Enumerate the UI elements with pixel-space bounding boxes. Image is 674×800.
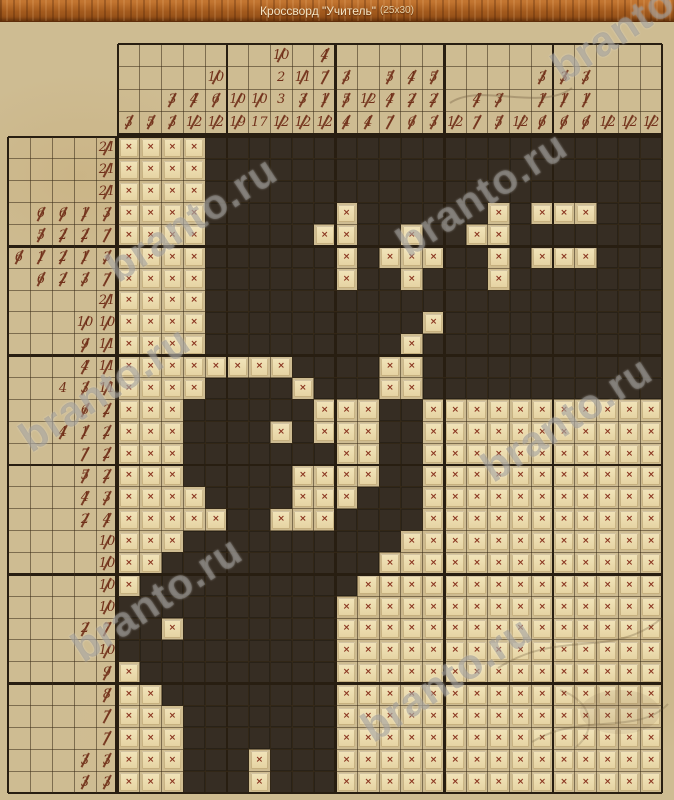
top-clue[interactable]: 10 [249, 89, 271, 111]
grid-cell[interactable]: × [640, 552, 662, 574]
top-clue[interactable]: 1 [531, 89, 553, 111]
grid-cell[interactable]: × [379, 246, 401, 268]
grid-cell[interactable]: × [423, 531, 445, 553]
grid-cell[interactable] [140, 596, 162, 618]
grid-cell[interactable] [357, 378, 379, 400]
grid-cell[interactable] [183, 662, 205, 684]
grid-cell[interactable]: × [423, 574, 445, 596]
grid-cell[interactable] [205, 334, 227, 356]
grid-cell[interactable] [466, 203, 488, 225]
grid-cell[interactable] [249, 465, 271, 487]
grid-cell[interactable]: × [336, 203, 358, 225]
grid-cell[interactable]: × [618, 487, 640, 509]
grid-cell[interactable]: × [118, 137, 140, 159]
grid-cell[interactable]: × [270, 509, 292, 531]
grid-cell[interactable]: × [640, 684, 662, 706]
grid-cell[interactable]: × [575, 487, 597, 509]
grid-cell[interactable]: × [618, 574, 640, 596]
grid-cell[interactable] [466, 290, 488, 312]
grid-cell[interactable]: × [444, 727, 466, 749]
top-clue[interactable]: 10 [270, 44, 292, 66]
grid-cell[interactable] [249, 378, 271, 400]
grid-cell[interactable]: × [510, 706, 532, 728]
grid-cell[interactable] [227, 181, 249, 203]
grid-cell[interactable]: × [466, 684, 488, 706]
top-clue[interactable]: 12 [510, 111, 532, 133]
grid-cell[interactable] [379, 224, 401, 246]
grid-cell[interactable] [336, 334, 358, 356]
grid-cell[interactable]: × [183, 509, 205, 531]
grid-cell[interactable]: × [140, 378, 162, 400]
grid-cell[interactable]: × [162, 487, 184, 509]
grid-cell[interactable] [423, 290, 445, 312]
grid-cell[interactable]: × [401, 531, 423, 553]
grid-cell[interactable]: × [162, 749, 184, 771]
top-clue[interactable]: 12 [444, 111, 466, 133]
grid-cell[interactable]: × [488, 399, 510, 421]
grid-cell[interactable]: × [118, 421, 140, 443]
grid-cell[interactable] [249, 662, 271, 684]
grid-cell[interactable] [205, 203, 227, 225]
grid-cell[interactable]: × [336, 246, 358, 268]
grid-cell[interactable] [401, 421, 423, 443]
grid-cell[interactable]: × [423, 662, 445, 684]
grid-cell[interactable] [640, 246, 662, 268]
grid-cell[interactable]: × [466, 421, 488, 443]
grid-cell[interactable]: × [510, 596, 532, 618]
grid-cell[interactable] [401, 203, 423, 225]
grid-cell[interactable]: × [575, 749, 597, 771]
grid-cell[interactable]: × [575, 684, 597, 706]
grid-cell[interactable]: × [140, 137, 162, 159]
grid-cell[interactable] [357, 246, 379, 268]
grid-cell[interactable]: × [575, 443, 597, 465]
grid-cell[interactable] [162, 596, 184, 618]
grid-cell[interactable]: × [466, 596, 488, 618]
grid-cell[interactable] [249, 181, 271, 203]
grid-cell[interactable] [618, 224, 640, 246]
grid-cell[interactable] [336, 159, 358, 181]
grid-cell[interactable]: × [488, 618, 510, 640]
grid-cell[interactable] [227, 596, 249, 618]
grid-cell[interactable]: × [292, 465, 314, 487]
grid-cell[interactable]: × [162, 224, 184, 246]
grid-cell[interactable] [314, 203, 336, 225]
grid-cell[interactable]: × [140, 509, 162, 531]
top-clue[interactable]: 5 [379, 66, 401, 88]
grid-cell[interactable] [249, 618, 271, 640]
grid-cell[interactable]: × [640, 662, 662, 684]
grid-cell[interactable] [444, 181, 466, 203]
top-clue[interactable]: 4 [183, 89, 205, 111]
grid-cell[interactable]: × [292, 487, 314, 509]
grid-cell[interactable]: × [488, 640, 510, 662]
grid-cell[interactable]: × [379, 378, 401, 400]
grid-cell[interactable]: × [423, 509, 445, 531]
grid-cell[interactable]: × [401, 640, 423, 662]
grid-cell[interactable] [553, 334, 575, 356]
grid-cell[interactable] [553, 224, 575, 246]
grid-cell[interactable] [292, 290, 314, 312]
grid-cell[interactable] [618, 334, 640, 356]
grid-cell[interactable] [270, 640, 292, 662]
grid-cell[interactable]: × [314, 487, 336, 509]
grid-cell[interactable] [314, 596, 336, 618]
grid-cell[interactable]: × [183, 137, 205, 159]
grid-cell[interactable] [336, 137, 358, 159]
grid-cell[interactable] [205, 531, 227, 553]
grid-cell[interactable] [140, 640, 162, 662]
grid-cell[interactable]: × [466, 618, 488, 640]
grid-cell[interactable] [292, 356, 314, 378]
grid-cell[interactable] [249, 246, 271, 268]
grid-cell[interactable] [292, 706, 314, 728]
grid-cell[interactable] [466, 137, 488, 159]
grid-cell[interactable] [292, 771, 314, 793]
grid-cell[interactable] [401, 399, 423, 421]
grid-cell[interactable]: × [249, 749, 271, 771]
grid-cell[interactable]: × [162, 618, 184, 640]
grid-cell[interactable] [379, 137, 401, 159]
grid-cell[interactable]: × [488, 596, 510, 618]
grid-cell[interactable]: × [401, 706, 423, 728]
grid-cell[interactable] [379, 465, 401, 487]
grid-cell[interactable] [466, 378, 488, 400]
grid-cell[interactable]: × [423, 487, 445, 509]
grid-cell[interactable] [618, 159, 640, 181]
grid-cell[interactable]: × [401, 618, 423, 640]
grid-cell[interactable]: × [510, 662, 532, 684]
grid-cell[interactable] [270, 487, 292, 509]
grid-cell[interactable] [531, 181, 553, 203]
grid-cell[interactable] [270, 618, 292, 640]
grid-cell[interactable] [444, 334, 466, 356]
grid-cell[interactable] [314, 684, 336, 706]
grid-cell[interactable]: × [597, 749, 619, 771]
grid-cell[interactable] [597, 137, 619, 159]
grid-cell[interactable] [249, 312, 271, 334]
grid-cell[interactable]: × [401, 662, 423, 684]
grid-cell[interactable] [270, 159, 292, 181]
grid-cell[interactable] [618, 312, 640, 334]
grid-cell[interactable]: × [553, 771, 575, 793]
grid-cell[interactable]: × [575, 574, 597, 596]
grid-cell[interactable]: × [162, 137, 184, 159]
grid-cell[interactable] [292, 399, 314, 421]
top-clue[interactable]: 6 [205, 89, 227, 111]
top-clue[interactable]: 12 [597, 111, 619, 133]
grid-cell[interactable]: × [575, 531, 597, 553]
grid-cell[interactable] [314, 137, 336, 159]
grid-cell[interactable]: × [140, 771, 162, 793]
grid-cell[interactable] [249, 334, 271, 356]
grid-cell[interactable]: × [575, 662, 597, 684]
grid-cell[interactable]: × [401, 771, 423, 793]
grid-cell[interactable] [270, 684, 292, 706]
grid-cell[interactable] [183, 465, 205, 487]
grid-cell[interactable] [314, 290, 336, 312]
grid-cell[interactable] [510, 268, 532, 290]
grid-cell[interactable] [249, 443, 271, 465]
grid-cell[interactable]: × [183, 312, 205, 334]
grid-cell[interactable] [597, 334, 619, 356]
top-clue[interactable]: 6 [401, 111, 423, 133]
top-clue[interactable]: 3 [270, 89, 292, 111]
grid-cell[interactable] [553, 356, 575, 378]
grid-cell[interactable] [401, 290, 423, 312]
grid-cell[interactable] [314, 268, 336, 290]
grid-cell[interactable] [140, 618, 162, 640]
grid-cell[interactable] [227, 509, 249, 531]
grid-cell[interactable] [466, 159, 488, 181]
grid-cell[interactable] [640, 159, 662, 181]
top-clue[interactable]: 7 [466, 111, 488, 133]
grid-cell[interactable] [597, 246, 619, 268]
grid-cell[interactable]: × [553, 684, 575, 706]
grid-cell[interactable] [227, 487, 249, 509]
grid-cell[interactable] [379, 181, 401, 203]
grid-cell[interactable] [314, 531, 336, 553]
grid-cell[interactable]: × [357, 706, 379, 728]
grid-cell[interactable]: × [357, 618, 379, 640]
top-clue[interactable]: 2 [270, 66, 292, 88]
grid-cell[interactable]: × [640, 465, 662, 487]
grid-cell[interactable]: × [423, 399, 445, 421]
grid-cell[interactable] [379, 203, 401, 225]
grid-cell[interactable] [314, 246, 336, 268]
grid-cell[interactable] [249, 706, 271, 728]
grid-cell[interactable] [357, 552, 379, 574]
grid-cell[interactable]: × [423, 443, 445, 465]
grid-cell[interactable] [510, 290, 532, 312]
grid-cell[interactable]: × [357, 727, 379, 749]
grid-cell[interactable] [227, 531, 249, 553]
top-clue[interactable]: 7 [379, 111, 401, 133]
grid-cell[interactable]: × [531, 706, 553, 728]
top-clue[interactable]: 6 [553, 111, 575, 133]
grid-cell[interactable]: × [183, 290, 205, 312]
top-clue[interactable]: 4 [357, 111, 379, 133]
grid-cell[interactable] [249, 137, 271, 159]
grid-cell[interactable] [423, 268, 445, 290]
top-clue[interactable]: 3 [553, 66, 575, 88]
grid-cell[interactable]: × [466, 443, 488, 465]
grid-cell[interactable] [183, 771, 205, 793]
grid-cell[interactable]: × [531, 662, 553, 684]
grid-cell[interactable]: × [640, 596, 662, 618]
grid-cell[interactable] [336, 531, 358, 553]
grid-cell[interactable] [597, 224, 619, 246]
grid-cell[interactable]: × [553, 662, 575, 684]
top-clue[interactable]: 5 [336, 89, 358, 111]
grid-cell[interactable] [205, 640, 227, 662]
grid-cell[interactable]: × [379, 662, 401, 684]
grid-cell[interactable]: × [575, 771, 597, 793]
grid-cell[interactable]: × [531, 465, 553, 487]
grid-cell[interactable] [488, 378, 510, 400]
grid-cell[interactable]: × [531, 203, 553, 225]
grid-cell[interactable]: × [401, 356, 423, 378]
grid-cell[interactable] [227, 312, 249, 334]
grid-cell[interactable]: × [444, 465, 466, 487]
left-clue[interactable]: 2 [52, 268, 74, 290]
grid-cell[interactable]: × [488, 203, 510, 225]
grid-cell[interactable]: × [379, 640, 401, 662]
grid-cell[interactable]: × [575, 706, 597, 728]
left-clue[interactable]: 1 [74, 246, 96, 268]
top-clue[interactable]: 3 [423, 111, 445, 133]
grid-cell[interactable]: × [597, 640, 619, 662]
grid-cell[interactable] [205, 684, 227, 706]
grid-cell[interactable] [531, 268, 553, 290]
grid-cell[interactable]: × [597, 574, 619, 596]
grid-cell[interactable] [488, 181, 510, 203]
left-clue[interactable]: 3 [74, 771, 96, 793]
grid-cell[interactable]: × [336, 618, 358, 640]
grid-cell[interactable]: × [553, 618, 575, 640]
grid-cell[interactable]: × [118, 356, 140, 378]
grid-cell[interactable]: × [183, 246, 205, 268]
grid-cell[interactable] [205, 552, 227, 574]
top-clue[interactable]: 3 [162, 89, 184, 111]
grid-cell[interactable]: × [183, 224, 205, 246]
grid-cell[interactable]: × [140, 334, 162, 356]
grid-cell[interactable]: × [357, 771, 379, 793]
grid-cell[interactable]: × [553, 640, 575, 662]
grid-cell[interactable] [292, 224, 314, 246]
grid-cell[interactable]: × [336, 443, 358, 465]
top-clue[interactable]: 3 [292, 89, 314, 111]
grid-cell[interactable]: × [640, 509, 662, 531]
grid-cell[interactable] [205, 574, 227, 596]
grid-cell[interactable]: × [423, 706, 445, 728]
grid-cell[interactable]: × [140, 224, 162, 246]
grid-cell[interactable] [292, 749, 314, 771]
grid-cell[interactable] [336, 181, 358, 203]
grid-cell[interactable]: × [336, 421, 358, 443]
grid-cell[interactable]: × [510, 509, 532, 531]
grid-cell[interactable]: × [466, 399, 488, 421]
left-clue[interactable]: 7 [74, 443, 96, 465]
grid-cell[interactable]: × [162, 159, 184, 181]
grid-cell[interactable]: × [618, 509, 640, 531]
grid-cell[interactable] [205, 290, 227, 312]
grid-cell[interactable]: × [379, 552, 401, 574]
grid-cell[interactable] [640, 356, 662, 378]
grid-cell[interactable] [205, 246, 227, 268]
grid-cell[interactable]: × [162, 312, 184, 334]
grid-cell[interactable]: × [357, 465, 379, 487]
grid-cell[interactable]: × [336, 684, 358, 706]
grid-cell[interactable]: × [510, 618, 532, 640]
grid-cell[interactable]: × [379, 618, 401, 640]
grid-cell[interactable] [553, 378, 575, 400]
grid-cell[interactable]: × [466, 706, 488, 728]
grid-cell[interactable] [249, 596, 271, 618]
grid-cell[interactable]: × [357, 684, 379, 706]
grid-cell[interactable] [466, 246, 488, 268]
grid-cell[interactable] [205, 727, 227, 749]
grid-cell[interactable] [292, 312, 314, 334]
grid-cell[interactable] [488, 159, 510, 181]
grid-cell[interactable] [401, 443, 423, 465]
top-clue[interactable]: 2 [423, 89, 445, 111]
grid-cell[interactable] [270, 181, 292, 203]
grid-cell[interactable]: × [401, 378, 423, 400]
grid-cell[interactable]: × [162, 443, 184, 465]
grid-cell[interactable]: × [488, 771, 510, 793]
grid-cell[interactable] [423, 356, 445, 378]
grid-cell[interactable]: × [140, 421, 162, 443]
grid-cell[interactable] [205, 399, 227, 421]
grid-cell[interactable] [466, 181, 488, 203]
grid-cell[interactable]: × [531, 552, 553, 574]
grid-cell[interactable] [379, 312, 401, 334]
grid-cell[interactable]: × [401, 596, 423, 618]
top-clue[interactable]: 4 [379, 89, 401, 111]
grid-cell[interactable] [314, 618, 336, 640]
grid-cell[interactable]: × [618, 618, 640, 640]
grid-cell[interactable] [227, 334, 249, 356]
grid-cell[interactable]: × [640, 443, 662, 465]
grid-cell[interactable]: × [357, 443, 379, 465]
grid-cell[interactable]: × [379, 727, 401, 749]
top-clue[interactable]: 3 [575, 66, 597, 88]
grid-cell[interactable]: × [618, 771, 640, 793]
grid-cell[interactable] [401, 312, 423, 334]
grid-cell[interactable]: × [249, 356, 271, 378]
grid-cell[interactable] [444, 356, 466, 378]
grid-cell[interactable] [510, 356, 532, 378]
grid-cell[interactable]: × [292, 378, 314, 400]
grid-cell[interactable] [423, 181, 445, 203]
grid-cell[interactable]: × [118, 706, 140, 728]
grid-cell[interactable]: × [531, 487, 553, 509]
grid-cell[interactable]: × [292, 509, 314, 531]
top-clue[interactable]: 12 [357, 89, 379, 111]
grid-cell[interactable] [249, 531, 271, 553]
grid-cell[interactable] [314, 312, 336, 334]
grid-cell[interactable]: × [597, 771, 619, 793]
grid-cell[interactable]: × [531, 246, 553, 268]
grid-cell[interactable] [379, 509, 401, 531]
grid-cell[interactable]: × [553, 421, 575, 443]
grid-cell[interactable] [205, 596, 227, 618]
grid-cell[interactable]: × [314, 399, 336, 421]
grid-cell[interactable] [292, 203, 314, 225]
grid-cell[interactable] [423, 378, 445, 400]
grid-cell[interactable] [249, 268, 271, 290]
grid-cell[interactable]: × [423, 596, 445, 618]
grid-cell[interactable]: × [618, 421, 640, 443]
grid-cell[interactable] [205, 618, 227, 640]
grid-cell[interactable]: × [357, 596, 379, 618]
grid-cell[interactable]: × [336, 224, 358, 246]
grid-cell[interactable]: × [618, 531, 640, 553]
grid-cell[interactable] [249, 487, 271, 509]
grid-cell[interactable]: × [466, 509, 488, 531]
grid-cell[interactable] [575, 290, 597, 312]
grid-cell[interactable] [314, 574, 336, 596]
grid-cell[interactable]: × [597, 399, 619, 421]
grid-cell[interactable] [379, 443, 401, 465]
grid-cell[interactable]: × [466, 662, 488, 684]
grid-cell[interactable]: × [597, 509, 619, 531]
grid-cell[interactable] [227, 224, 249, 246]
grid-cell[interactable] [575, 181, 597, 203]
grid-cell[interactable] [444, 224, 466, 246]
grid-cell[interactable]: × [140, 552, 162, 574]
